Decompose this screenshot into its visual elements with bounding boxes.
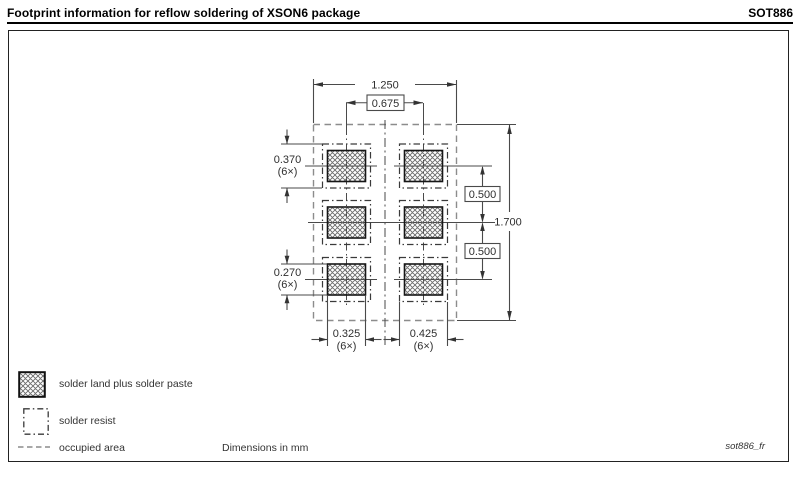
solder-pad (328, 207, 366, 238)
dim-land-height-label: 0.270 (274, 267, 302, 279)
dim-resist-width-qty: (6×) (414, 341, 434, 353)
dim-pitch-y-bottom-label: 0.500 (469, 246, 497, 258)
dim-resist-width-label: 0.425 (410, 328, 438, 340)
solder-pad (405, 207, 443, 238)
dim-pitch-y-bottom: 0.500 (465, 223, 500, 280)
legend-solder-resist-label: solder resist (59, 415, 116, 428)
dim-pitch-y-top: 0.500 (465, 166, 500, 223)
dim-resist-height-qty: (6×) (278, 166, 298, 178)
dim-land-width-label: 0.325 (333, 328, 361, 340)
dim-pitch-x-label: 0.675 (372, 98, 400, 110)
units-note: Dimensions in mm (222, 442, 308, 455)
dim-pitch-y-top-label: 0.500 (469, 189, 497, 201)
legend-occupied-area-label: occupied area (59, 442, 125, 455)
solder-land-swatch (18, 371, 46, 398)
solder-resist-swatch (23, 408, 49, 435)
solder-pad (328, 151, 366, 182)
dim-pitch-x: 0.675 (346, 95, 423, 111)
dim-resist-width: 0.425 (6×) (384, 302, 464, 353)
solder-pad (328, 264, 366, 295)
footprint-drawing: 1.250 0.675 0.370 (6×) 0.270 (6×) (0, 0, 800, 479)
dim-land-width-qty: (6×) (337, 341, 357, 353)
legend-solder-land-label: solder land plus solder paste (59, 378, 193, 391)
dim-resist-height-label: 0.370 (274, 154, 302, 166)
occupied-area-swatch (18, 444, 50, 450)
solder-pad (405, 264, 443, 295)
dim-overall-width-label: 1.250 (371, 80, 399, 92)
dim-overall-height-label: 1.700 (494, 217, 522, 229)
solder-pad (405, 151, 443, 182)
drawing-reference: sot886_fr (660, 441, 765, 452)
dim-land-height-qty: (6×) (278, 279, 298, 291)
